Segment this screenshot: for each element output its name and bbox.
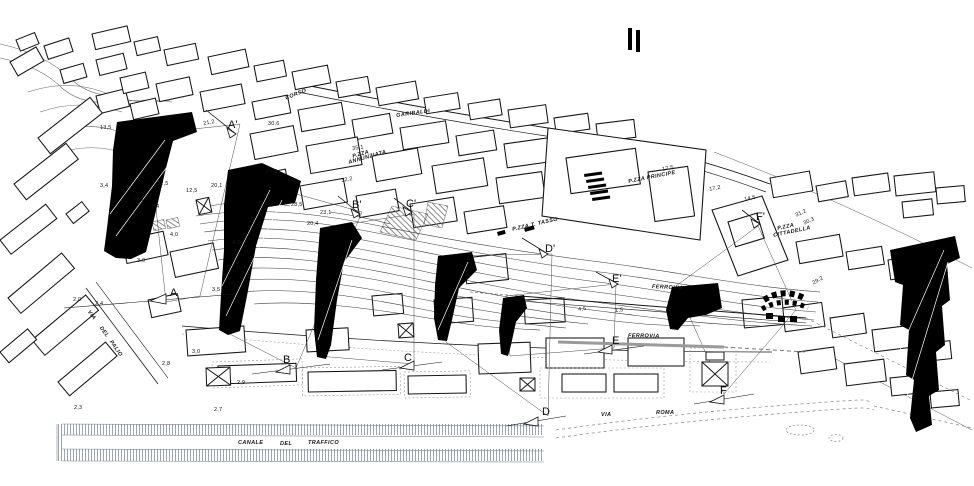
site-plan-drawing bbox=[0, 0, 974, 486]
section-shadow-6 bbox=[666, 283, 722, 330]
section-shadow-4 bbox=[434, 252, 477, 341]
canal bbox=[57, 424, 544, 462]
site-plan-page: A' B' C' D' E' F' A B C D E F CORSO GARI… bbox=[0, 0, 974, 486]
promenade-dashed bbox=[556, 400, 972, 442]
